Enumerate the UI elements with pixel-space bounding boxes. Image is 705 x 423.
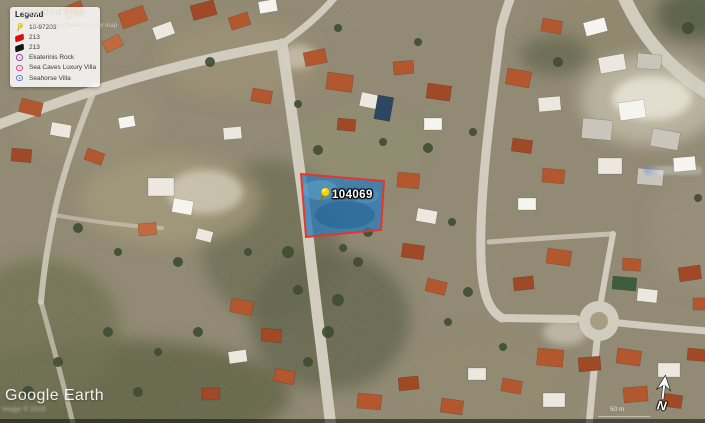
faint-attribution-smudge [644,166,702,175]
legend-item: Ekaterinis Rock [15,53,96,63]
legend-panel: Legend 10-97203 213 213 Ekaterinis Rock … [10,7,100,87]
bottom-letterbox [0,419,705,423]
legend-title: Legend [15,10,96,19]
pushpin-icon [15,23,24,32]
parcel-pushpin-icon[interactable] [318,187,331,203]
google-earth-viewport: Untitled Map Write a description for you… [0,0,705,423]
pink-circle-icon [15,65,24,72]
legend-item-label: Ekaterinis Rock [29,54,74,61]
blue-circle-icon [15,75,24,82]
legend-item-label: Sea Caves Luxury Villa [29,64,96,71]
legend-item-label: 10-97203 [29,24,56,31]
legend-item: 10-97203 [15,22,96,32]
red-polygon-icon [15,35,24,41]
legend-item-label: 213 [29,34,40,41]
scale-bar [598,416,650,417]
parcel-placemark[interactable]: 104069 [318,187,373,203]
legend-item-label: 213 [29,44,40,51]
scale-label: 50 m [610,406,624,413]
google-earth-watermark: Google Earth [5,387,104,405]
legend-item: 213 [15,42,96,52]
black-polygon-icon [15,45,24,51]
legend-item: 213 [15,32,96,42]
legend-item-label: Seahorse Villa [29,75,71,82]
legend-item: Seahorse Villa [15,73,96,83]
attribution-text: Image © 2023 [2,407,46,413]
satellite-map-canvas[interactable] [0,0,705,423]
north-arrow: N [648,373,679,418]
parcel-label[interactable]: 104069 [332,189,373,201]
purple-circle-icon [15,54,24,61]
north-arrow-icon [650,373,677,402]
legend-item: Sea Caves Luxury Villa [15,63,96,73]
north-label: N [656,399,667,411]
